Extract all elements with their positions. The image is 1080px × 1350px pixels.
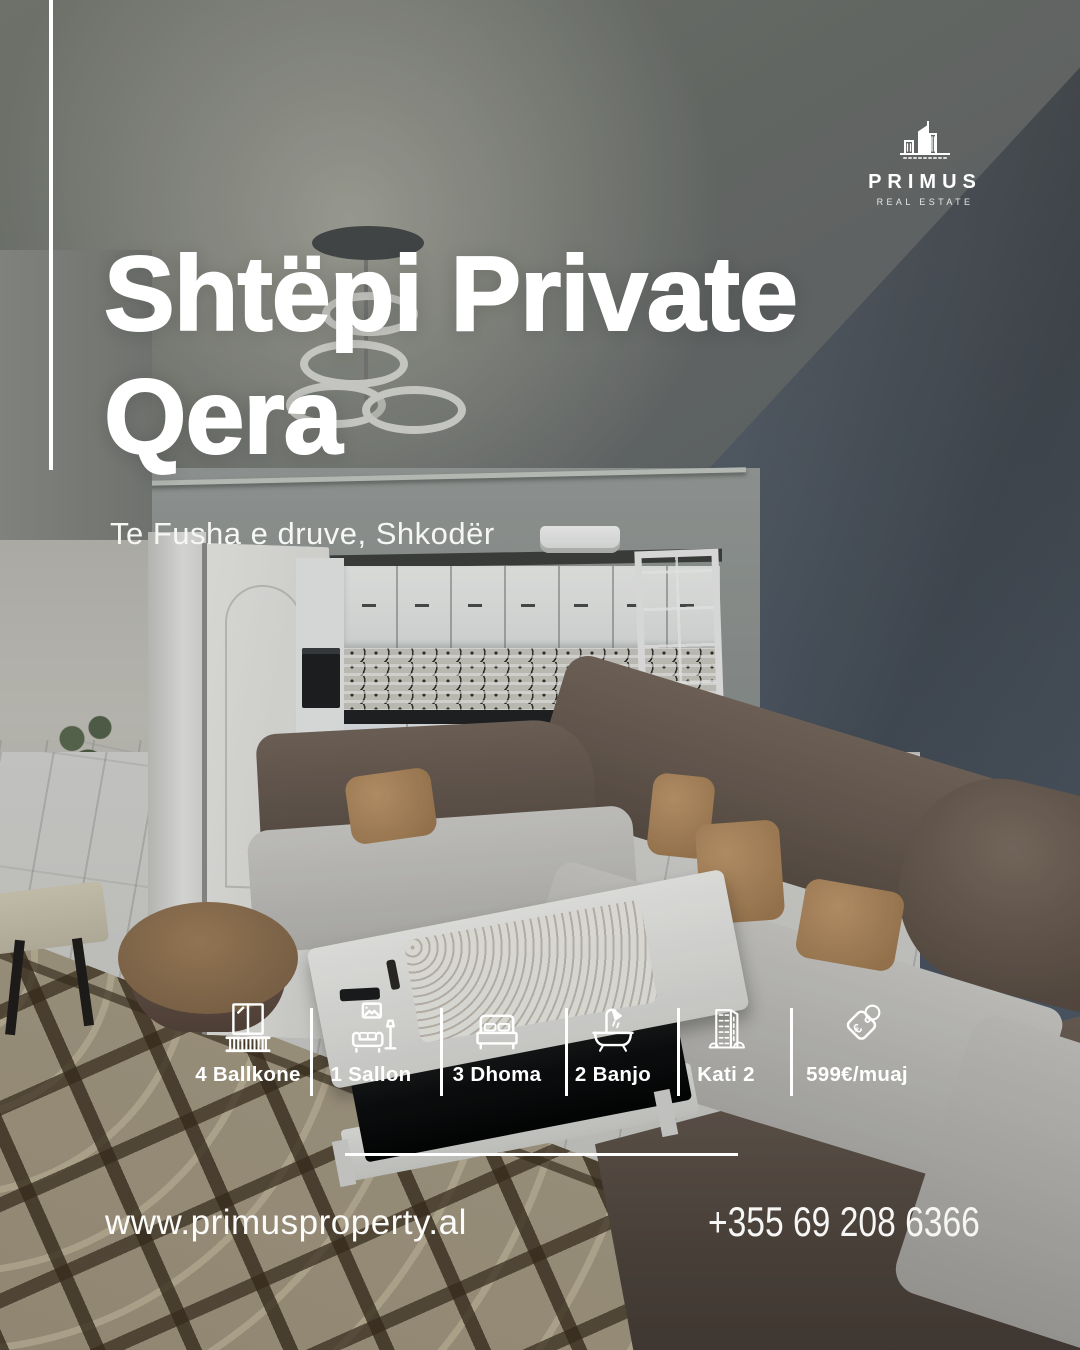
- brand-logo: PRIMUS REAL ESTATE: [845, 120, 1005, 207]
- website-text: www.primusproperty.al: [105, 1203, 467, 1243]
- feature-price: € 599€/muaj: [777, 1002, 937, 1087]
- price-tag-icon: €: [829, 1002, 885, 1054]
- title-line-1: Shtëpi Private: [104, 233, 1044, 356]
- sofa-icon: [345, 1002, 397, 1054]
- phone-text: +355 69 208 6366: [708, 1198, 980, 1246]
- accent-vertical-line: [49, 0, 53, 470]
- location-text: Te Fusha e druve, Shkodër: [110, 516, 495, 552]
- feature-label: 599€/muaj: [777, 1063, 937, 1087]
- brand-tagline: REAL ESTATE: [845, 197, 1005, 207]
- title-line-2: Qera: [104, 356, 1044, 479]
- accent-horizontal-line: [345, 1153, 738, 1156]
- buildings-icon: [899, 120, 951, 162]
- bathtub-icon: [587, 1002, 639, 1054]
- poster-title: Shtëpi Private Qera: [104, 233, 1044, 479]
- svg-text:€: €: [850, 1020, 865, 1036]
- balcony-icon: [222, 1002, 274, 1054]
- brand-name: PRIMUS: [845, 171, 1005, 194]
- building-icon: [698, 1002, 754, 1054]
- bed-icon: [471, 1002, 523, 1054]
- real-estate-poster: PRIMUS REAL ESTATE Shtëpi Private Qera T…: [0, 0, 1080, 1350]
